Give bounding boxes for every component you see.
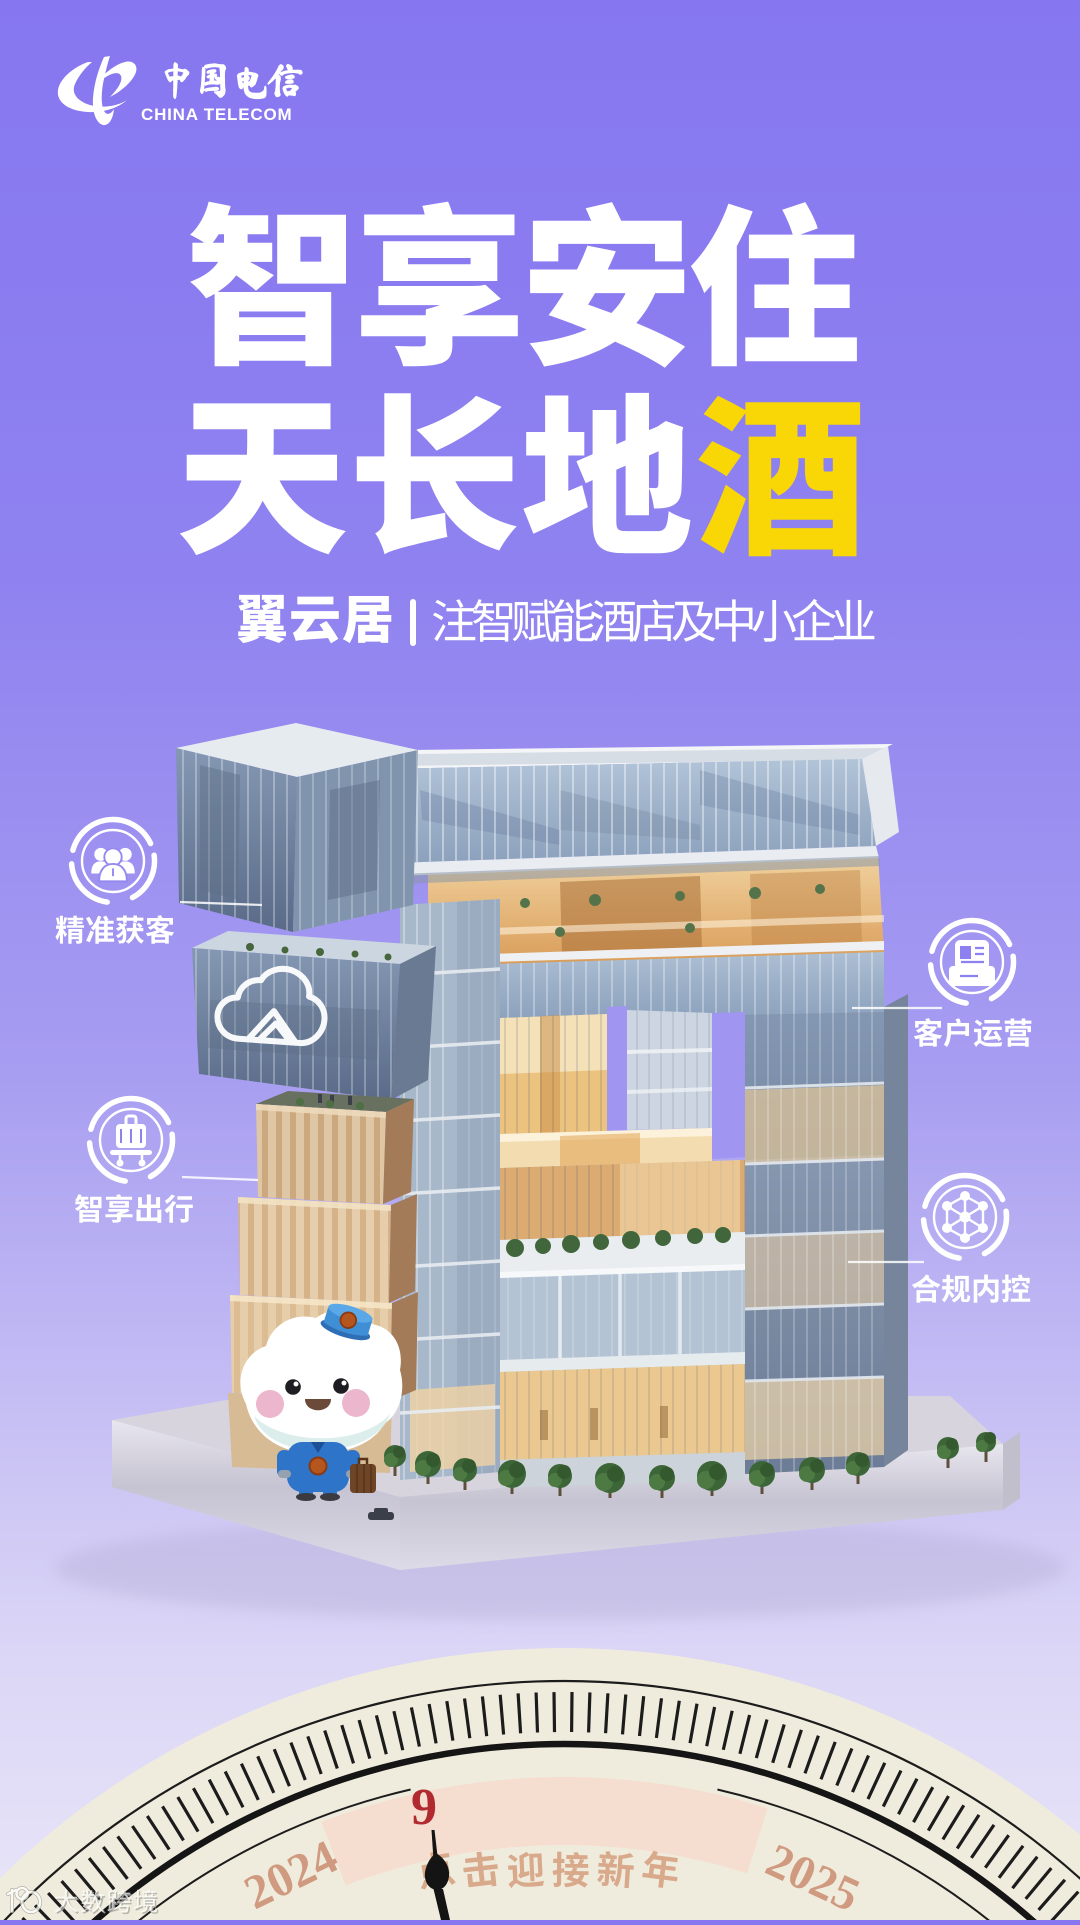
svg-text:CHINA TELECOM: CHINA TELECOM bbox=[141, 105, 292, 124]
svg-text:9: 9 bbox=[411, 1779, 437, 1836]
